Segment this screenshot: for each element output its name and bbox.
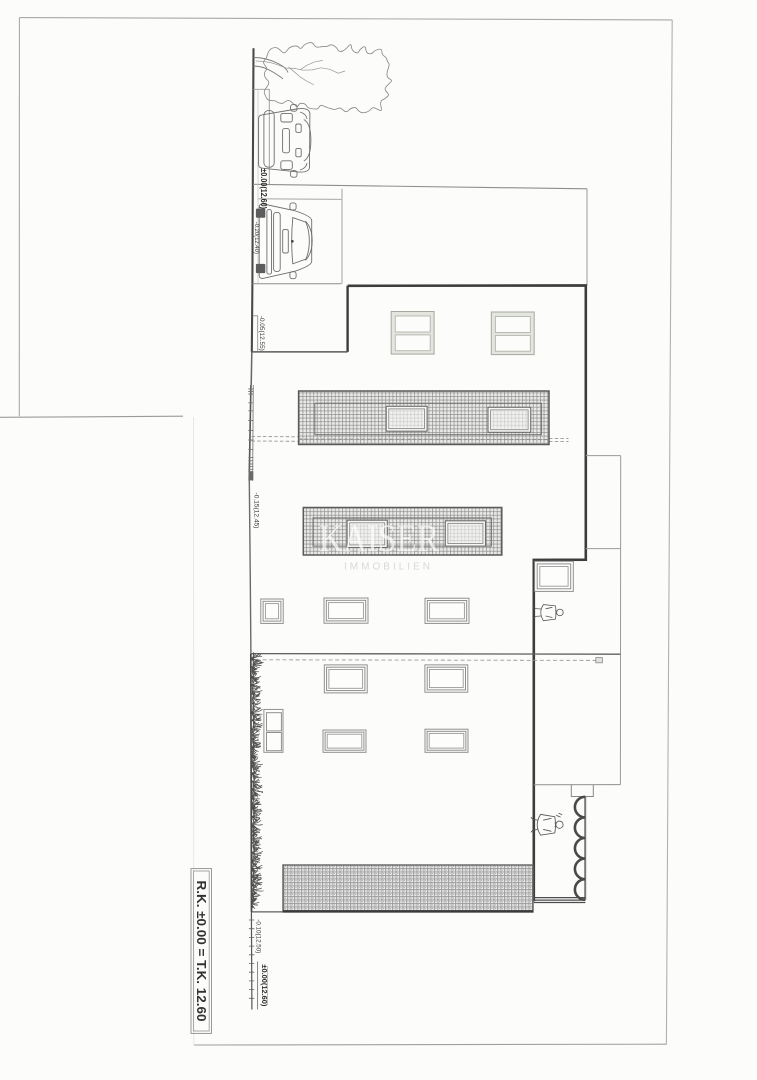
svg-text:KAISER: KAISER <box>319 517 439 560</box>
svg-text:IMMOBILIEN: IMMOBILIEN <box>344 562 430 573</box>
svg-text:-0.20(12.40): -0.20(12.40) <box>253 222 260 254</box>
svg-text:-0.10(12.50): -0.10(12.50) <box>254 919 261 953</box>
svg-text:±0.00(12.60): ±0.00(12.60) <box>259 169 268 210</box>
svg-text:-0.15(12.45): -0.15(12.45) <box>253 493 260 529</box>
svg-text:R.K. ±0.00 = T.K. 12.60: R.K. ±0.00 = T.K. 12.60 <box>194 881 209 1022</box>
svg-text:-0.05(12.55): -0.05(12.55) <box>258 316 265 351</box>
